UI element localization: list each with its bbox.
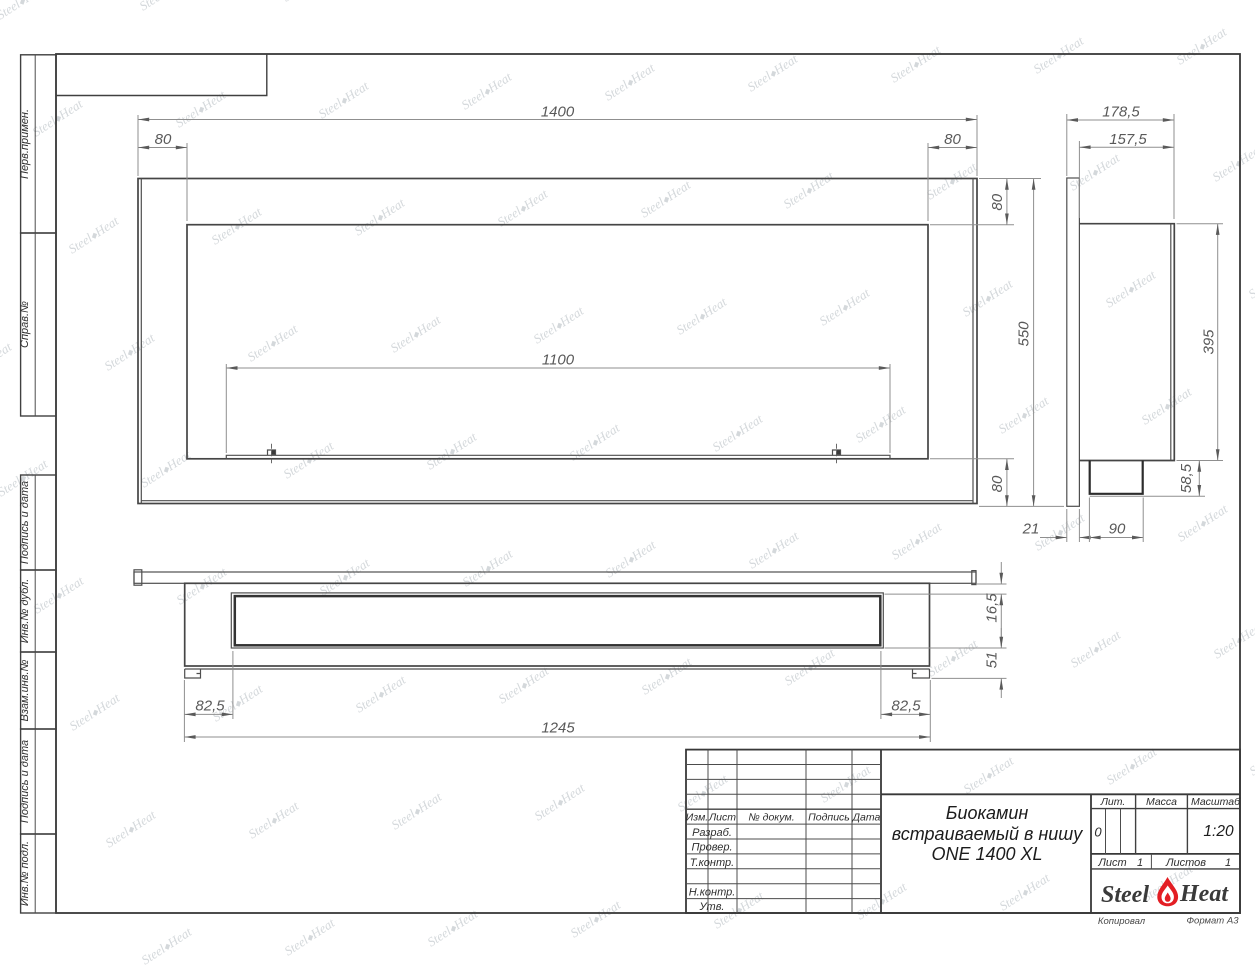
svg-text:Steel◆Heat: Steel◆Heat: [566, 420, 622, 464]
svg-text:ONE 1400 XL: ONE 1400 XL: [931, 844, 1042, 864]
svg-text:Steel◆Heat: Steel◆Heat: [315, 78, 371, 122]
svg-text:Steel◆Heat: Steel◆Heat: [494, 186, 550, 230]
svg-text:Steel◆Heat: Steel◆Heat: [601, 60, 657, 104]
svg-text:Steel◆Heat: Steel◆Heat: [316, 555, 372, 599]
svg-text:Steel◆Heat: Steel◆Heat: [852, 402, 908, 446]
svg-text:Steel◆Heat: Steel◆Heat: [923, 159, 979, 203]
svg-text:Steel◆Heat: Steel◆Heat: [709, 411, 765, 455]
svg-text:Steel◆Heat: Steel◆Heat: [567, 897, 623, 941]
svg-text:Steel◆Heat: Steel◆Heat: [531, 780, 587, 824]
svg-text:Справ.№: Справ.№: [19, 301, 31, 348]
svg-text:Steel◆Heat: Steel◆Heat: [960, 753, 1016, 797]
svg-text:Steel◆Heat: Steel◆Heat: [208, 204, 264, 248]
svg-text:Steel◆Heat: Steel◆Heat: [1067, 627, 1123, 671]
svg-text:Инв.№ подл.: Инв.№ подл.: [19, 841, 31, 906]
svg-text:1:20: 1:20: [1203, 823, 1234, 840]
svg-text:Steel◆Heat: Steel◆Heat: [1245, 258, 1255, 302]
svg-text:Дата: Дата: [852, 812, 881, 824]
svg-text:550: 550: [1016, 321, 1033, 347]
svg-text:Steel◆Heat: Steel◆Heat: [744, 51, 800, 95]
svg-text:80: 80: [155, 131, 172, 148]
svg-text:Steel◆Heat: Steel◆Heat: [136, 0, 192, 14]
svg-text:Steel◆Heat: Steel◆Heat: [244, 321, 300, 365]
svg-text:Копировал: Копировал: [1098, 916, 1146, 927]
svg-text:Перв.примен.: Перв.примен.: [19, 109, 31, 179]
svg-text:Steel◆Heat: Steel◆Heat: [423, 429, 479, 473]
svg-text:82,5: 82,5: [195, 698, 225, 715]
svg-text:Steel◆Heat: Steel◆Heat: [30, 573, 86, 617]
svg-text:Steel◆Heat: Steel◆Heat: [530, 303, 586, 347]
svg-text:51: 51: [983, 652, 1000, 669]
svg-text:80: 80: [989, 193, 1006, 210]
svg-text:Steel◆Heat: Steel◆Heat: [101, 330, 157, 374]
svg-text:Инв.№ дубл.: Инв.№ дубл.: [19, 579, 31, 644]
svg-text:Взам.инв.№: Взам.инв.№: [19, 659, 31, 721]
svg-text:58,5: 58,5: [1178, 463, 1195, 493]
svg-text:Провер.: Провер.: [692, 842, 733, 854]
svg-text:Steel◆Heat: Steel◆Heat: [245, 798, 301, 842]
svg-text:82,5: 82,5: [891, 698, 921, 715]
svg-text:Н.контр.: Н.контр.: [689, 887, 736, 899]
svg-text:90: 90: [1109, 521, 1126, 538]
svg-text:Лит.: Лит.: [1100, 796, 1126, 808]
svg-text:Steel◆Heat: Steel◆Heat: [281, 915, 337, 959]
svg-text:Подпись и дата: Подпись и дата: [19, 481, 31, 564]
svg-text:Steel◆Heat: Steel◆Heat: [102, 807, 158, 851]
svg-text:Разраб.: Разраб.: [692, 827, 732, 839]
svg-text:Steel◆Heat: Steel◆Heat: [1173, 24, 1229, 68]
svg-text:Steel◆Heat: Steel◆Heat: [1210, 618, 1255, 662]
svg-text:Steel◆Heat: Steel◆Heat: [137, 447, 193, 491]
svg-text:Утв.: Утв.: [699, 901, 725, 913]
svg-text:Steel◆Heat: Steel◆Heat: [1102, 267, 1158, 311]
svg-text:Steel◆Heat: Steel◆Heat: [66, 690, 122, 734]
svg-text:Лист: Лист: [1097, 857, 1126, 869]
svg-text:Steel◆Heat: Steel◆Heat: [29, 96, 85, 140]
svg-text:Steel◆Heat: Steel◆Heat: [279, 0, 335, 5]
svg-text:1245: 1245: [541, 720, 575, 737]
svg-text:Steel◆Heat: Steel◆Heat: [959, 276, 1015, 320]
svg-text:Изм.: Изм.: [686, 812, 708, 824]
svg-text:Steel◆Heat: Steel◆Heat: [745, 528, 801, 572]
svg-text:Steel◆Heat: Steel◆Heat: [173, 564, 229, 608]
svg-text:Steel◆Heat: Steel◆Heat: [780, 168, 836, 212]
svg-text:Биокамин: Биокамин: [946, 803, 1029, 823]
svg-text:Масштаб: Масштаб: [1191, 796, 1241, 808]
svg-text:Steel◆Heat: Steel◆Heat: [887, 42, 943, 86]
svg-text:Steel◆Heat: Steel◆Heat: [816, 285, 872, 329]
svg-text:Steel◆Heat: Steel◆Heat: [638, 654, 694, 698]
svg-text:Steel◆Heat: Steel◆Heat: [0, 0, 50, 23]
svg-text:Steel◆Heat: Steel◆Heat: [637, 177, 693, 221]
svg-text:Steel◆Heat: Steel◆Heat: [388, 789, 444, 833]
svg-text:встраиваемый в нишу: встраиваемый в нишу: [892, 824, 1083, 844]
svg-text:Steel◆Heat: Steel◆Heat: [352, 672, 408, 716]
svg-text:Т.контр.: Т.контр.: [690, 857, 734, 869]
svg-text:Листов: Листов: [1165, 857, 1206, 869]
svg-text:Масса: Масса: [1146, 796, 1177, 808]
svg-text:Steel◆Heat: Steel◆Heat: [817, 762, 873, 806]
svg-text:Подпись и дата: Подпись и дата: [19, 740, 31, 823]
svg-text:1400: 1400: [541, 104, 575, 121]
svg-text:Steel◆Heat: Steel◆Heat: [996, 870, 1052, 914]
svg-text:178,5: 178,5: [1102, 104, 1140, 121]
svg-text:Steel◆Heat: Steel◆Heat: [674, 771, 730, 815]
svg-text:1: 1: [1225, 857, 1231, 869]
svg-text:Steel◆Heat: Steel◆Heat: [995, 393, 1051, 437]
svg-text:Steel◆Heat: Steel◆Heat: [65, 213, 121, 257]
svg-text:Heat: Heat: [1179, 881, 1229, 907]
svg-text:Steel◆Heat: Steel◆Heat: [924, 636, 980, 680]
svg-text:0: 0: [1094, 825, 1102, 840]
svg-text:Steel◆Heat: Steel◆Heat: [387, 312, 443, 356]
svg-text:16,5: 16,5: [983, 593, 1000, 623]
svg-text:157,5: 157,5: [1109, 131, 1147, 148]
svg-text:Формат А3: Формат А3: [1187, 916, 1240, 927]
svg-text:80: 80: [989, 475, 1006, 492]
svg-text:Steel◆Heat: Steel◆Heat: [1138, 384, 1194, 428]
svg-text:Steel◆Heat: Steel◆Heat: [888, 519, 944, 563]
svg-text:Steel◆Heat: Steel◆Heat: [1174, 501, 1230, 545]
svg-text:80: 80: [944, 131, 961, 148]
svg-text:№ докум.: № докум.: [748, 812, 794, 824]
svg-text:Steel◆Heat: Steel◆Heat: [351, 195, 407, 239]
svg-text:Steel◆Heat: Steel◆Heat: [1066, 150, 1122, 194]
svg-text:1: 1: [1137, 857, 1143, 869]
svg-text:395: 395: [1201, 329, 1218, 355]
svg-text:Лист: Лист: [708, 812, 736, 824]
svg-text:Steel◆Heat: Steel◆Heat: [673, 294, 729, 338]
svg-text:Steel◆Heat: Steel◆Heat: [280, 438, 336, 482]
svg-text:Steel◆Heat: Steel◆Heat: [1209, 141, 1255, 185]
svg-text:Steel◆Heat: Steel◆Heat: [0, 339, 15, 383]
svg-text:Steel◆Heat: Steel◆Heat: [1246, 735, 1255, 779]
svg-text:Steel◆Heat: Steel◆Heat: [138, 924, 194, 968]
svg-text:Steel: Steel: [1101, 882, 1149, 908]
svg-text:Steel◆Heat: Steel◆Heat: [458, 69, 514, 113]
svg-text:Steel◆Heat: Steel◆Heat: [602, 537, 658, 581]
svg-text:1100: 1100: [542, 352, 575, 369]
svg-text:Подпись: Подпись: [808, 812, 850, 824]
svg-text:Steel◆Heat: Steel◆Heat: [172, 87, 228, 131]
svg-text:21: 21: [1022, 521, 1040, 538]
